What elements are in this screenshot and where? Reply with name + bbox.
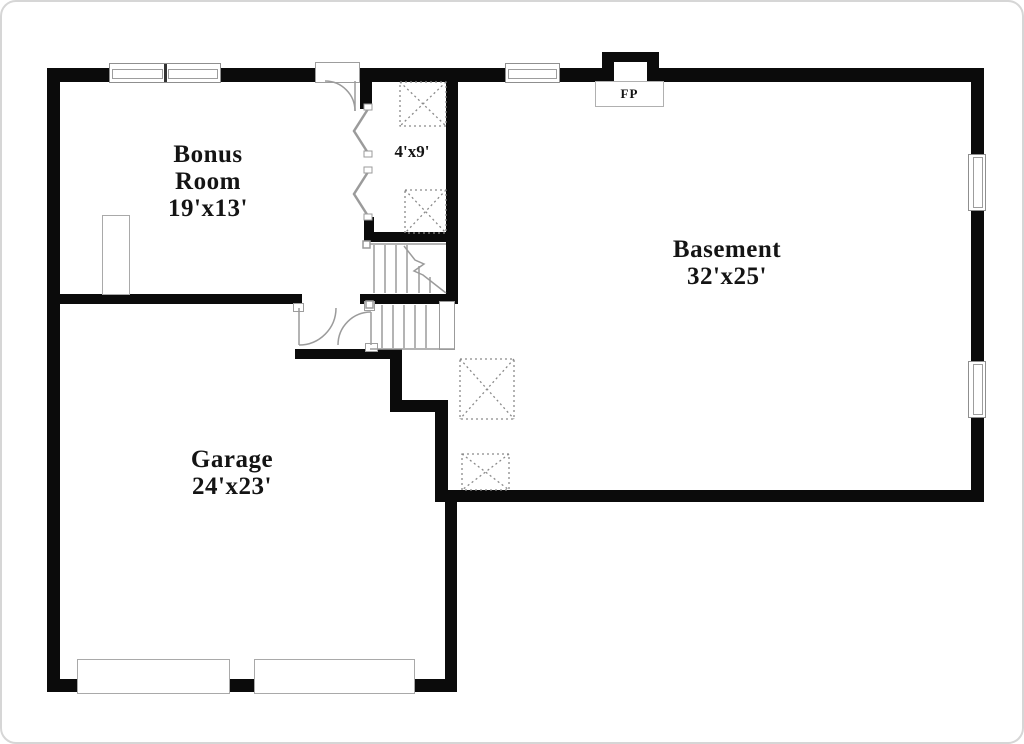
label-garage: Garage 24'x23' [132,446,332,500]
room-dimensions: 32'x25' [627,263,827,290]
hatch-box-outline [460,359,514,419]
wall-hall-bottom [364,232,458,242]
hatch-box-hall-upper [400,82,446,126]
wall-landing-bottom [295,349,400,359]
hatch-box-basement-upper [460,359,514,419]
hatch-box-outline [400,82,446,126]
stair-landing-strip [439,301,455,350]
bifold-cap [364,151,372,157]
hatch-diagonal [460,359,514,419]
wall-hall-right [446,68,458,304]
hatch-diagonal [462,454,509,490]
plan-linework [2,2,1024,744]
wall-garage-right-lower [445,502,457,692]
room-dimensions: 4'x9' [380,143,444,161]
door-swing-arc [299,308,336,345]
door-jamb-top-entry [315,62,360,83]
bifold-doors [354,104,372,220]
bifold-panel-lower [354,172,368,216]
door-jamb-garage-entry [293,303,304,312]
fireplace-label-box: FP [595,81,664,107]
wall-exterior-left [47,68,60,692]
window-hall-top [505,63,560,83]
label-hall: 4'x9' [380,143,444,161]
door-swing-arc [338,312,371,345]
window-pane [508,69,557,79]
bifold-panel-upper [354,109,368,153]
window-basement-right-lower [968,361,986,418]
hatch-box-outline [462,454,509,490]
wall-exterior-right [971,68,984,502]
window-pane [112,69,163,79]
room-dimensions: 19'x13' [143,195,273,222]
hatch-diagonal [400,82,446,126]
hatch-diagonal [400,82,446,126]
stair-break-line [404,246,446,293]
room-name: Garage [132,446,332,473]
bifold-cap [364,167,372,173]
room-dimensions: 24'x23' [132,473,332,500]
wall-step-horizontal [390,400,447,412]
door-swing-arc [325,81,355,111]
door-garage-entry [299,308,336,345]
door-top-entry [325,81,355,111]
hatch-box-basement-lower [462,454,509,490]
wall-basement-bottom [435,490,984,502]
door-stair-landing [338,312,371,345]
wall-garage-right-upper [435,400,448,492]
door-jamb-landing-bottom [365,343,378,352]
hatch-box-outline [405,190,446,233]
staircase-upper-flight [363,241,446,293]
stair-nosing-cap [363,241,370,248]
window-pane [973,157,983,208]
window-bonus-left [109,63,166,83]
hatch-diagonal [405,190,446,233]
wall-bonus-garage [47,294,302,304]
garage-door-left [77,659,230,694]
fireplace-label: FP [621,86,639,101]
window-mullion [164,64,167,82]
window-pane [168,69,218,79]
hatch-diagonal [405,190,446,233]
label-basement: Basement 32'x25' [627,236,827,290]
room-name: Basement [627,236,827,263]
hatch-diagonal [462,454,509,490]
hatch-diagonal [460,359,514,419]
garage-door-right [254,659,415,694]
wall-hall-left-stub [360,82,372,109]
utility-fixture [102,215,130,295]
floor-plan: FP [0,0,1024,744]
window-pane [973,364,983,415]
room-name: Bonus Room [143,141,273,195]
hatch-box-hall-lower [405,190,446,233]
window-bonus-right [165,63,221,83]
window-basement-right-upper [968,154,986,211]
fireplace-notch [614,62,647,81]
label-bonus-room: Bonus Room 19'x13' [143,141,273,222]
door-jamb-landing-top [364,301,375,311]
